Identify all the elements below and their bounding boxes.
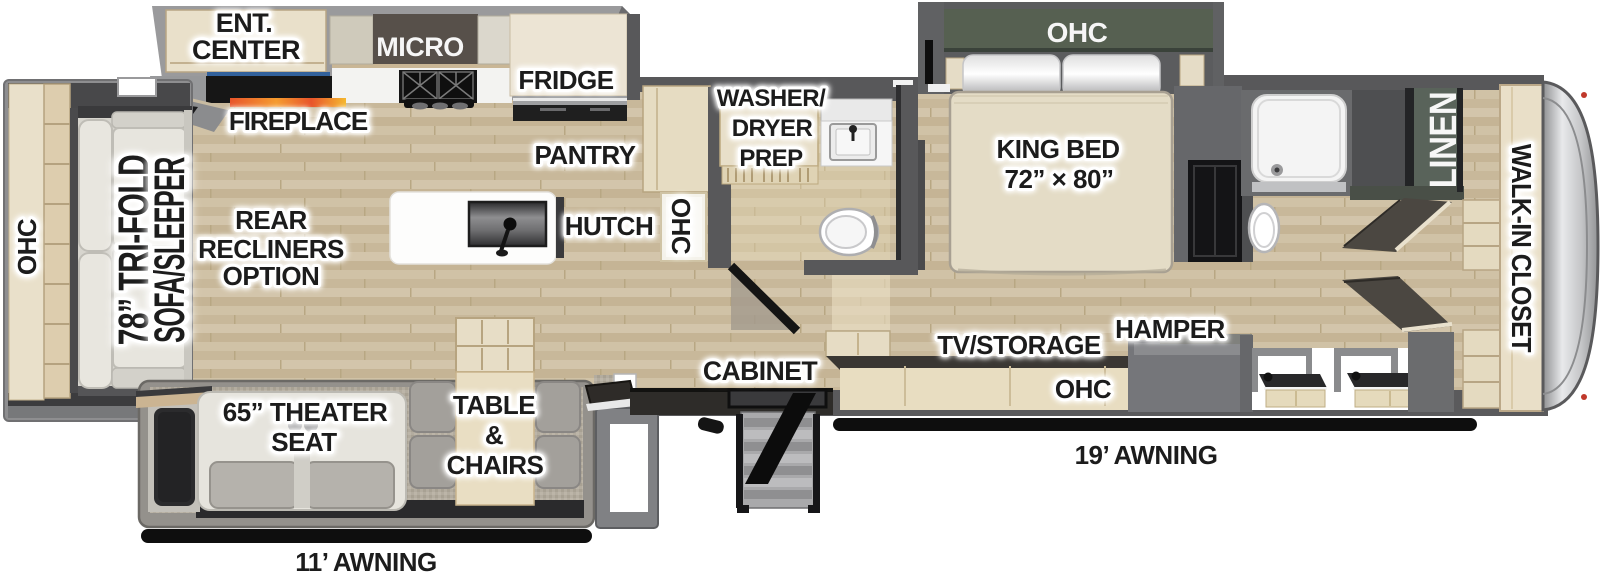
svg-text:HUTCH: HUTCH bbox=[565, 211, 654, 241]
svg-text:FRIDGE: FRIDGE bbox=[518, 65, 613, 95]
svg-text:CENTER: CENTER bbox=[192, 35, 300, 65]
svg-text:65” THEATER: 65” THEATER bbox=[223, 397, 388, 427]
svg-text:11’ AWNING: 11’ AWNING bbox=[295, 547, 436, 574]
svg-text:REAR: REAR bbox=[235, 205, 307, 235]
svg-text:TABLE: TABLE bbox=[453, 390, 535, 420]
svg-text:DRYER: DRYER bbox=[732, 115, 813, 142]
svg-text:PANTRY: PANTRY bbox=[535, 140, 636, 170]
svg-text:PREP: PREP bbox=[739, 145, 803, 172]
svg-text:WASHER/: WASHER/ bbox=[717, 85, 826, 112]
svg-text:&: & bbox=[485, 420, 503, 450]
svg-text:72” × 80”: 72” × 80” bbox=[1005, 164, 1114, 194]
svg-text:OHC: OHC bbox=[666, 198, 696, 255]
svg-text:RECLINERS: RECLINERS bbox=[198, 234, 344, 264]
svg-text:OHC: OHC bbox=[1047, 17, 1108, 48]
svg-text:FIREPLACE: FIREPLACE bbox=[229, 106, 368, 136]
svg-text:CABINET: CABINET bbox=[703, 356, 818, 386]
svg-text:KING BED: KING BED bbox=[996, 134, 1119, 164]
svg-text:19’ AWNING: 19’ AWNING bbox=[1075, 440, 1218, 470]
svg-text:ENT.: ENT. bbox=[216, 8, 273, 38]
svg-text:OPTION: OPTION bbox=[223, 261, 320, 291]
svg-text:LINEN: LINEN bbox=[1422, 92, 1465, 188]
svg-text:MICRO: MICRO bbox=[376, 32, 464, 62]
svg-text:SOFA/SLEEPER: SOFA/SLEEPER bbox=[146, 157, 194, 343]
svg-text:SEAT: SEAT bbox=[271, 427, 337, 457]
svg-text:OHC: OHC bbox=[12, 218, 42, 275]
svg-text:OHC: OHC bbox=[1055, 374, 1112, 404]
svg-text:HAMPER: HAMPER bbox=[1115, 314, 1225, 344]
svg-text:TV/STORAGE: TV/STORAGE bbox=[937, 330, 1101, 360]
svg-text:CHAIRS: CHAIRS bbox=[447, 450, 544, 480]
svg-text:WALK-IN CLOSET: WALK-IN CLOSET bbox=[1506, 144, 1537, 353]
